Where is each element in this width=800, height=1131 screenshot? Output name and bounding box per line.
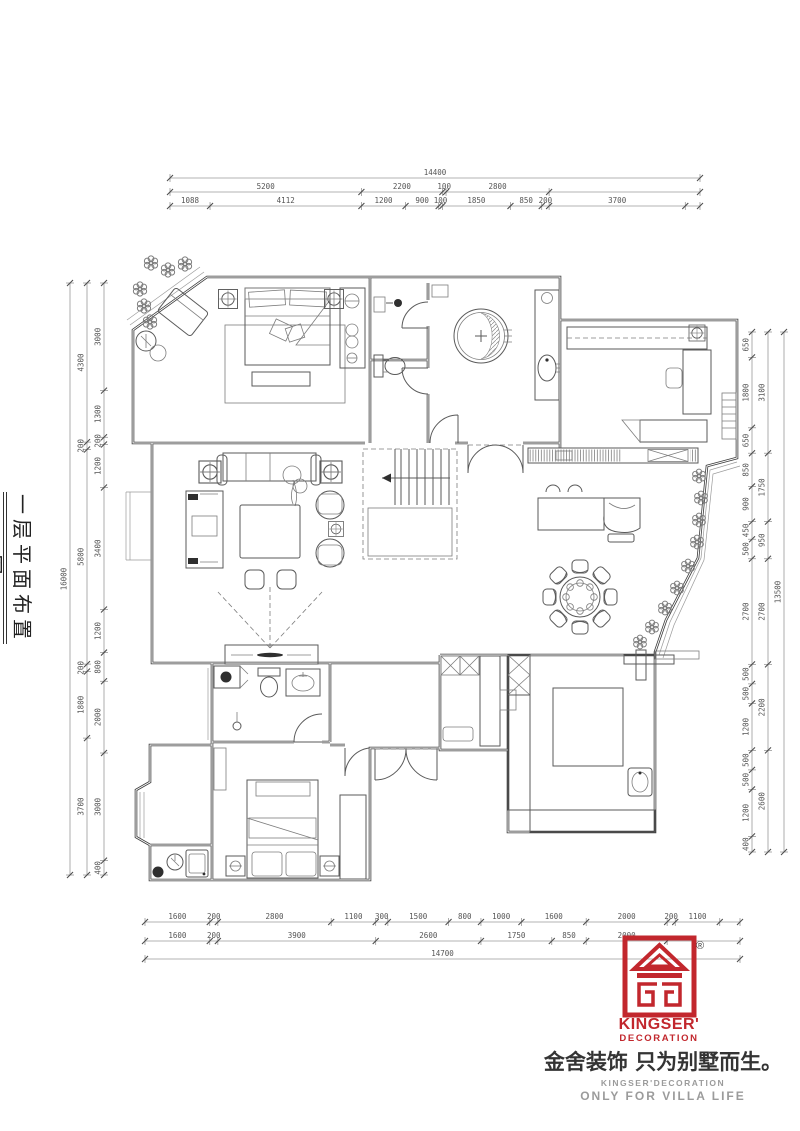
small-sink-icon <box>374 297 385 312</box>
dim-chain: 3000130020012003400120080020003000400 <box>94 280 109 878</box>
hall-double-door <box>468 445 523 473</box>
living-room <box>186 453 344 664</box>
dim-label: 1200 <box>94 456 103 475</box>
side-table <box>329 522 344 537</box>
dim-label: 850 <box>742 463 751 477</box>
armchair <box>316 491 344 519</box>
nightstand <box>320 856 339 876</box>
rug <box>225 325 345 403</box>
appliance-icon <box>186 850 208 877</box>
dim-label: 1500 <box>409 912 428 921</box>
dim-label: 1750 <box>758 478 767 497</box>
wc-rooms <box>374 297 428 394</box>
walls <box>133 277 737 880</box>
dim-label: 1200 <box>94 622 103 641</box>
dim-chain: 31001750950270022002600 <box>758 329 773 855</box>
dim-label: 4300 <box>77 353 86 372</box>
dim-label: 3400 <box>94 539 103 558</box>
dim-label: 200 <box>664 912 678 921</box>
mat <box>443 727 473 741</box>
dim-label: 800 <box>458 912 472 921</box>
dim-label: 3000 <box>94 327 103 346</box>
dim-label: 200 <box>77 661 86 675</box>
dim-chain: 4300200580020018003700 <box>77 280 92 878</box>
dim-label: 3900 <box>288 931 307 940</box>
utility-sink-icon <box>167 854 183 870</box>
chaise-lounge <box>136 287 209 361</box>
wardrobe <box>340 795 366 879</box>
dim-label: 450 <box>742 523 751 537</box>
kitchen-island <box>553 688 623 766</box>
dim-label: 500 <box>742 667 751 681</box>
door-arc <box>294 714 322 742</box>
dim-label: 200 <box>539 196 553 205</box>
dim-label: 1600 <box>545 912 564 921</box>
drawing-title: 一层平面布置图 <box>6 479 38 657</box>
ceiling-light-icon <box>325 290 344 309</box>
dim-chain: 1600200280011003001500800100016002000200… <box>142 912 743 926</box>
door-arc <box>345 748 369 776</box>
dining-table <box>543 560 617 634</box>
dim-label: 400 <box>94 861 103 875</box>
bathroom-2 <box>214 666 322 742</box>
door-arc <box>430 415 458 443</box>
utility-room <box>153 850 209 878</box>
dim-chain: 16000 <box>60 280 75 878</box>
pantry <box>441 656 516 746</box>
dim-label: 2600 <box>419 931 438 940</box>
dim-label: 400 <box>742 837 751 851</box>
armchair <box>316 539 344 567</box>
dim-label: 5800 <box>77 547 86 566</box>
floor-drain <box>233 722 241 730</box>
dim-label: 1600 <box>168 931 187 940</box>
dim-label: 1850 <box>467 196 486 205</box>
spiral-left-icon <box>639 984 657 1005</box>
toilet-icon <box>374 355 405 377</box>
dim-label: 1300 <box>94 404 103 423</box>
spiral-right-icon <box>662 984 680 1005</box>
coffee-table <box>240 505 300 558</box>
dim-label: 3700 <box>77 797 86 816</box>
dim-label: 2200 <box>758 698 767 717</box>
dim-label: 13500 <box>774 580 783 603</box>
dim-label: 1800 <box>77 695 86 714</box>
dim-label: 1100 <box>344 912 363 921</box>
tall-cabinet <box>480 656 500 746</box>
ceiling-light-icon <box>199 461 221 483</box>
dim-label: 2600 <box>758 792 767 811</box>
hanger-rail <box>640 420 707 442</box>
ceiling-light-icon <box>219 290 238 309</box>
inner-roof-icon <box>647 955 672 966</box>
tv-cabinet <box>186 491 223 568</box>
master-bath <box>430 285 560 443</box>
plant-icon <box>283 466 307 506</box>
dim-label: 1088 <box>181 196 200 205</box>
slogan-en-2: ONLY FOR VILLA LIFE <box>530 1089 796 1103</box>
dim-label: 2800 <box>265 912 284 921</box>
dining-chair <box>572 560 588 573</box>
dim-label: 2800 <box>489 182 508 191</box>
dim-label: 14700 <box>431 949 454 958</box>
drawing-title-text: 一层平面布置图 <box>0 492 34 644</box>
bedroom-2 <box>214 748 369 879</box>
dim-label: 900 <box>742 497 751 511</box>
entry-double-door <box>375 749 437 780</box>
dim-label: 500 <box>742 686 751 700</box>
dressing-desk <box>666 350 711 414</box>
corner-shelf <box>622 420 640 442</box>
garden-bench <box>624 650 699 680</box>
dim-label: 4112 <box>277 196 295 205</box>
niche <box>432 285 448 297</box>
dining-area <box>528 448 699 680</box>
dining-chair <box>543 589 556 605</box>
bed-bench <box>252 372 310 386</box>
dim-label: 300 <box>375 912 389 921</box>
stair-hatch <box>368 508 452 556</box>
radiator-icon <box>722 393 736 439</box>
dining-chair <box>572 621 588 634</box>
brand-subname: DECORATION <box>604 1033 714 1044</box>
pouf <box>245 570 264 589</box>
dim-label: 950 <box>758 533 767 547</box>
kingser-logo-mark <box>614 930 704 1020</box>
fixture-dot <box>394 299 402 307</box>
closet-grille <box>214 748 226 790</box>
counter <box>530 810 655 832</box>
dim-label: 16000 <box>60 567 69 590</box>
dim-label: 650 <box>742 433 751 447</box>
sofa <box>217 453 321 506</box>
dim-label: 2700 <box>742 602 751 621</box>
dim-label: 200 <box>207 931 221 940</box>
sink-icon <box>286 669 320 696</box>
door-arc <box>402 368 428 394</box>
slogan-cn: 金舍装饰 只为别墅而生。 <box>530 1046 796 1076</box>
dim-label: 100 <box>437 182 451 191</box>
dim-label: 3100 <box>758 383 767 402</box>
dim-label: 14400 <box>424 168 447 177</box>
ceiling-light-icon <box>320 461 342 483</box>
nightstand <box>226 856 245 876</box>
dim-label: 3000 <box>94 797 103 816</box>
dim-chain: 14400 <box>167 168 703 182</box>
bath-vanity <box>535 290 560 400</box>
dim-label: 100 <box>434 196 448 205</box>
cloakroom <box>567 325 736 442</box>
round-bathtub-icon <box>454 309 512 363</box>
dim-chain: 6501800650850900450500270050050012005005… <box>742 329 757 855</box>
dim-chain: 520022001002800 <box>167 182 703 196</box>
dim-label: 500 <box>742 772 751 786</box>
dim-label: 500 <box>742 753 751 767</box>
bar-island <box>538 485 604 530</box>
dim-label: 2200 <box>393 182 412 191</box>
shower-drain <box>221 672 232 683</box>
dim-label: 1750 <box>507 931 526 940</box>
dining-chair <box>604 589 617 605</box>
dim-label: 800 <box>94 660 103 674</box>
dim-label: 5200 <box>257 182 276 191</box>
brand-name: KINGSER' <box>604 1016 714 1034</box>
dim-chain: 13500 <box>774 329 789 855</box>
dim-label: 200 <box>94 434 103 448</box>
pouf <box>277 570 296 589</box>
registered-mark: ® <box>696 940 704 952</box>
dim-label: 1800 <box>742 383 751 402</box>
dim-chain: 10884112120090010018508502003700 <box>167 196 703 210</box>
kitchen <box>508 655 655 832</box>
dim-label: 1600 <box>168 912 187 921</box>
door-arc <box>402 302 428 328</box>
kitchen-sink-icon <box>628 768 652 796</box>
projector-lines <box>218 586 322 648</box>
bed-2 <box>247 780 318 878</box>
dim-label: 900 <box>415 196 429 205</box>
dim-label: 1200 <box>742 717 751 736</box>
toilet-icon <box>258 668 280 697</box>
dim-label: 200 <box>77 439 86 453</box>
dim-label: 2000 <box>618 912 637 921</box>
dim-label: 850 <box>519 196 533 205</box>
dim-label: 500 <box>742 542 751 556</box>
dim-label: 650 <box>742 337 751 351</box>
dim-label: 850 <box>562 931 576 940</box>
media-console <box>225 645 318 664</box>
dining-cabinet <box>528 448 698 463</box>
dim-label: 3700 <box>608 196 627 205</box>
dim-label: 2700 <box>758 602 767 621</box>
master-bed <box>245 288 330 365</box>
dim-label: 2000 <box>94 708 103 727</box>
stairs <box>363 449 457 559</box>
dim-label: 200 <box>207 912 221 921</box>
windows <box>126 267 208 838</box>
dim-label: 1100 <box>688 912 707 921</box>
dim-label: 1000 <box>492 912 511 921</box>
slogan-en-1: KINGSER'DECORATION <box>530 1078 796 1088</box>
dim-label: 1200 <box>374 196 393 205</box>
piano-icon <box>604 498 640 542</box>
dim-label: 1200 <box>742 803 751 822</box>
